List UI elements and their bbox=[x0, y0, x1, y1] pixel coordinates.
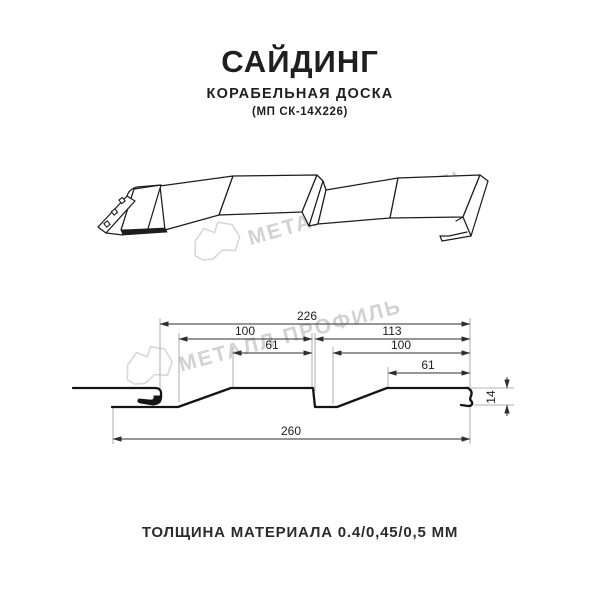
dim-label-100-left: 100 bbox=[235, 324, 255, 338]
brand-logo-icon bbox=[188, 218, 244, 264]
dim-label-100-right: 100 bbox=[391, 338, 411, 352]
dim-label-113: 113 bbox=[382, 324, 401, 338]
lock-hook bbox=[138, 396, 161, 405]
watermark-lower: МЕТАЛЛ ПРОФИЛЬ bbox=[121, 281, 405, 390]
board1-slope-face bbox=[160, 176, 233, 230]
board2-slope-face bbox=[318, 178, 398, 224]
right-end-curl bbox=[461, 388, 472, 406]
main-profile-line bbox=[112, 388, 468, 407]
dim-label-226: 226 bbox=[297, 309, 317, 323]
brand-logo-icon bbox=[121, 342, 176, 387]
profile-drawing-canvas: МЕТАЛЛ ПРОФИЛЬ МЕТАЛЛ ПРОФИЛЬ bbox=[0, 0, 600, 600]
dim-label-61-right: 61 bbox=[421, 358, 435, 372]
watermark-brand-text: МЕТАЛЛ ПРОФИЛЬ bbox=[176, 295, 404, 377]
top-strip-line bbox=[73, 388, 161, 398]
dim-label-61-left: 61 bbox=[265, 338, 279, 352]
dim-label-14: 14 bbox=[484, 390, 498, 404]
board1-top-face bbox=[219, 175, 317, 215]
flange-bottom-edge bbox=[106, 233, 123, 235]
material-thickness-note: ТОЛЩИНА МАТЕРИАЛА 0.4/0,45/0,5 ММ bbox=[0, 524, 600, 541]
profile-outline bbox=[73, 388, 472, 407]
dim-label-260: 260 bbox=[281, 424, 301, 438]
